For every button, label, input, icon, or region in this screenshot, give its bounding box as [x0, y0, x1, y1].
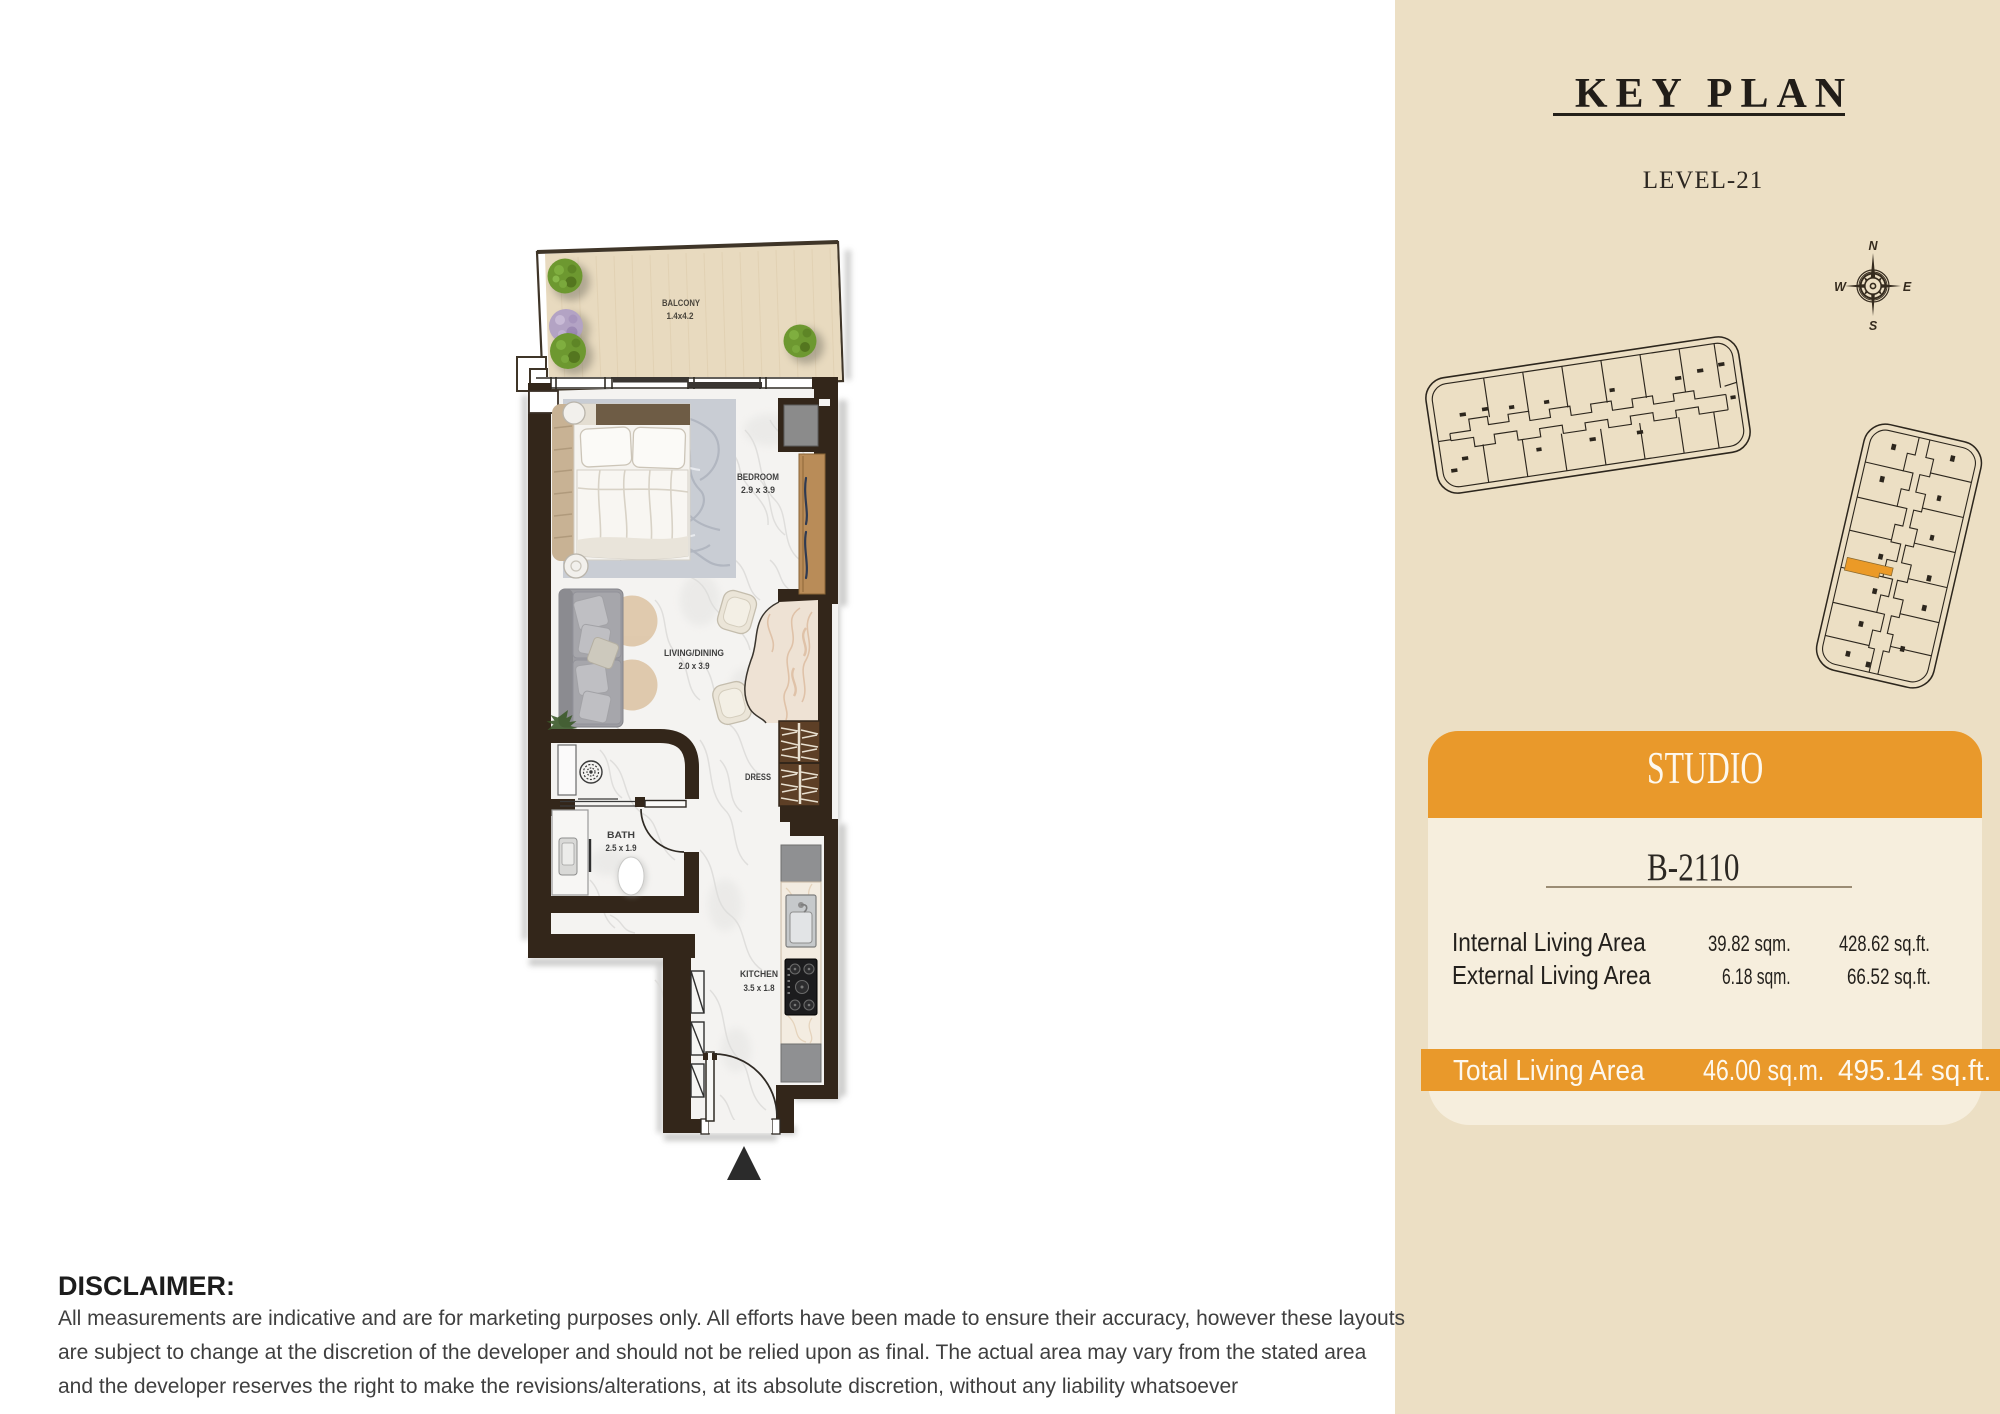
svg-text:3.5 x 1.8: 3.5 x 1.8	[744, 983, 775, 994]
svg-text:BATH: BATH	[607, 830, 635, 841]
svg-text:KITCHEN: KITCHEN	[740, 969, 778, 980]
svg-text:1.4x4.2: 1.4x4.2	[667, 311, 694, 322]
svg-text:2.5 x 1.9: 2.5 x 1.9	[606, 843, 637, 854]
svg-text:N: N	[1868, 239, 1878, 253]
svg-text:2.0 x 3.9: 2.0 x 3.9	[679, 661, 710, 672]
svg-text:LIVING/DINING: LIVING/DINING	[664, 648, 724, 659]
svg-text:BALCONY: BALCONY	[662, 298, 701, 309]
svg-text:BEDROOM: BEDROOM	[737, 472, 779, 483]
svg-text:S: S	[1869, 319, 1878, 332]
svg-text:DRESS: DRESS	[745, 772, 771, 783]
svg-text:W: W	[1834, 280, 1847, 294]
svg-text:2.9 x 3.9: 2.9 x 3.9	[741, 485, 775, 496]
svg-text:E: E	[1903, 280, 1912, 294]
